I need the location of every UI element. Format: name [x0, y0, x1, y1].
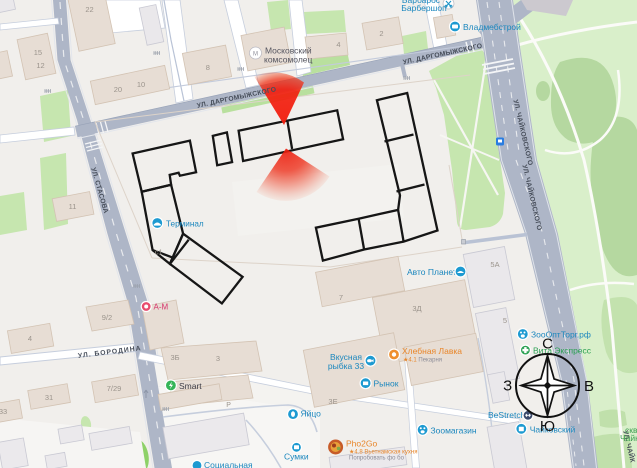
svg-text:З: З: [503, 378, 512, 395]
svg-text:10: 10: [137, 80, 145, 89]
svg-text:7: 7: [339, 293, 343, 302]
svg-text:Рынок: Рынок: [374, 379, 399, 389]
svg-text:комсомолец: комсомолец: [264, 55, 313, 65]
svg-text:Pho2Go: Pho2Go: [346, 439, 377, 449]
svg-text:9/2: 9/2: [102, 313, 112, 322]
svg-text:4: 4: [336, 40, 340, 49]
svg-text:Хлебная Лавка: Хлебная Лавка: [402, 346, 462, 356]
svg-text:С: С: [542, 336, 553, 353]
svg-text:М: М: [253, 52, 258, 58]
svg-text:3Б: 3Б: [170, 353, 179, 362]
svg-text:Сумки: Сумки: [284, 452, 309, 462]
svg-text:Социальная: Социальная: [204, 460, 253, 468]
svg-text:Авто Планета: Авто Планета: [407, 267, 462, 277]
svg-text:15: 15: [34, 48, 42, 57]
svg-text:3Е: 3Е: [328, 397, 337, 406]
svg-text:★4.8 Вьетнамская кухня: ★4.8 Вьетнамская кухня: [349, 449, 417, 456]
svg-text:Чайк: Чайк: [620, 433, 637, 443]
svg-text:Ю: Ю: [540, 418, 555, 435]
svg-text:3: 3: [216, 354, 220, 363]
svg-text:BeStretch: BeStretch: [488, 410, 526, 420]
svg-text:Терминал: Терминал: [166, 220, 204, 229]
svg-text:11: 11: [69, 202, 77, 211]
svg-text:В: В: [584, 378, 594, 395]
svg-text:8: 8: [206, 63, 210, 72]
svg-text:★4.1 Пекарня: ★4.1 Пекарня: [403, 357, 442, 364]
svg-text:2: 2: [379, 29, 383, 38]
svg-text:Попробовать фо бо: Попробовать фо бо: [349, 456, 405, 462]
svg-text:12: 12: [36, 61, 44, 70]
svg-text:22: 22: [85, 5, 93, 14]
svg-text:20: 20: [114, 85, 122, 94]
svg-text:Барбарос: Барбарос: [402, 0, 441, 5]
svg-text:А-М: А-М: [154, 303, 169, 312]
svg-text:ЗооОптТорг.рф: ЗооОптТорг.рф: [531, 330, 591, 340]
svg-text:3Д: 3Д: [412, 304, 421, 313]
svg-text:Smart: Smart: [179, 381, 202, 391]
svg-text:33: 33: [0, 407, 7, 416]
svg-text:5А: 5А: [490, 260, 499, 269]
svg-text:7/29: 7/29: [107, 384, 122, 393]
svg-text:4: 4: [28, 334, 32, 343]
svg-text:Владмебстрой: Владмебстрой: [463, 22, 521, 32]
svg-text:Зоомагазин: Зоомагазин: [431, 425, 477, 435]
svg-text:рыбка 33: рыбка 33: [328, 361, 364, 371]
svg-text:с1: с1: [155, 248, 163, 257]
svg-text:31: 31: [45, 393, 53, 402]
svg-text:Яйцо: Яйцо: [301, 409, 322, 419]
svg-text:5: 5: [503, 316, 507, 325]
svg-text:P: P: [226, 402, 231, 409]
